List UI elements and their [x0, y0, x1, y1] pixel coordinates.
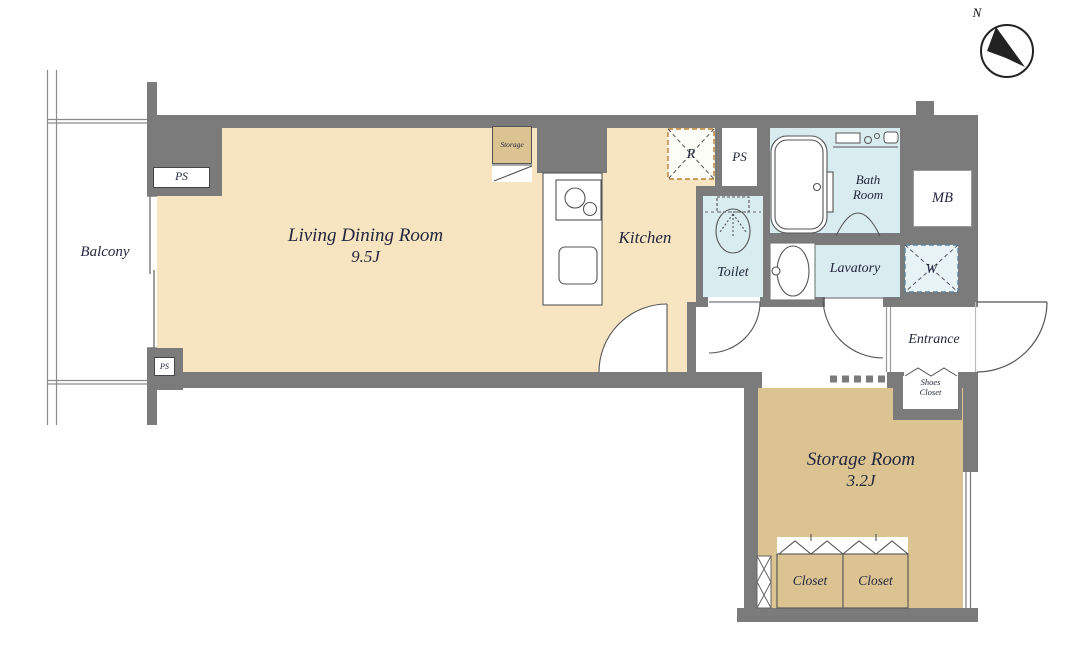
lavatory-label: Lavatory — [813, 260, 897, 277]
floor-plan: Balcony PS Living Dining Room 9.5J Stora… — [0, 0, 1091, 645]
storage-left-wall — [744, 372, 758, 622]
living-dining-label: Living Dining Room 9.5J — [243, 224, 488, 268]
toilet-door — [709, 302, 760, 353]
bottom-exterior-wall — [737, 608, 978, 622]
pipe-shaft-mid-label: PS — [722, 149, 757, 165]
balcony-window — [147, 196, 157, 348]
top-wall-notch — [916, 101, 934, 115]
north-arrow-icon — [981, 25, 1033, 77]
washer-label: W — [905, 261, 958, 277]
toilet-label: Toilet — [701, 264, 765, 281]
pipe-shaft-small-label: PS — [154, 357, 175, 376]
entrance-label: Entrance — [892, 331, 976, 348]
lavatory-door — [823, 298, 883, 358]
entrance-door — [976, 302, 1048, 372]
meter-box-label: MB — [913, 190, 972, 208]
bath-room-label: Bath Room — [834, 172, 902, 202]
hallway-wall-stub-1 — [696, 297, 708, 307]
closet-right-label: Closet — [843, 573, 908, 589]
kitchen-storage-label: Storage — [492, 126, 532, 164]
storage-room-size: 3.2J — [847, 471, 876, 492]
pipe-shaft-top-label: PS — [153, 167, 210, 188]
hallway-wall-stub-2 — [760, 297, 825, 307]
storage-right-wall — [963, 372, 978, 472]
kitchen-label: Kitchen — [597, 228, 693, 249]
balcony-wall-lower-stub — [147, 390, 157, 425]
balcony-wall-upper-stub — [147, 82, 157, 115]
bath-bottom-wall — [763, 233, 900, 245]
living-bottom-wall — [147, 372, 762, 388]
living-hallway-wall — [687, 302, 696, 372]
toilet-left-wall — [696, 196, 703, 307]
closet-left-label: Closet — [777, 573, 843, 589]
storage-window — [966, 472, 971, 608]
north-label: N — [964, 5, 990, 21]
refrigerator-label: R — [668, 146, 714, 162]
living-floor-lower — [157, 302, 687, 372]
balcony-label: Balcony — [50, 243, 160, 261]
kitchen-wall-block — [537, 115, 607, 173]
shoes-closet-label: Shoes Closet — [903, 377, 958, 397]
living-dining-floor — [157, 128, 715, 186]
entrance-step-line — [887, 307, 891, 372]
wall-between-r-ps — [715, 128, 722, 186]
hallway-wall-stub-3 — [883, 297, 900, 307]
living-dining-size: 9.5J — [351, 247, 380, 268]
storage-room-label: Storage Room 3.2J — [762, 448, 960, 492]
toilet-top-wall — [696, 186, 770, 196]
toilet-floor — [703, 196, 763, 297]
